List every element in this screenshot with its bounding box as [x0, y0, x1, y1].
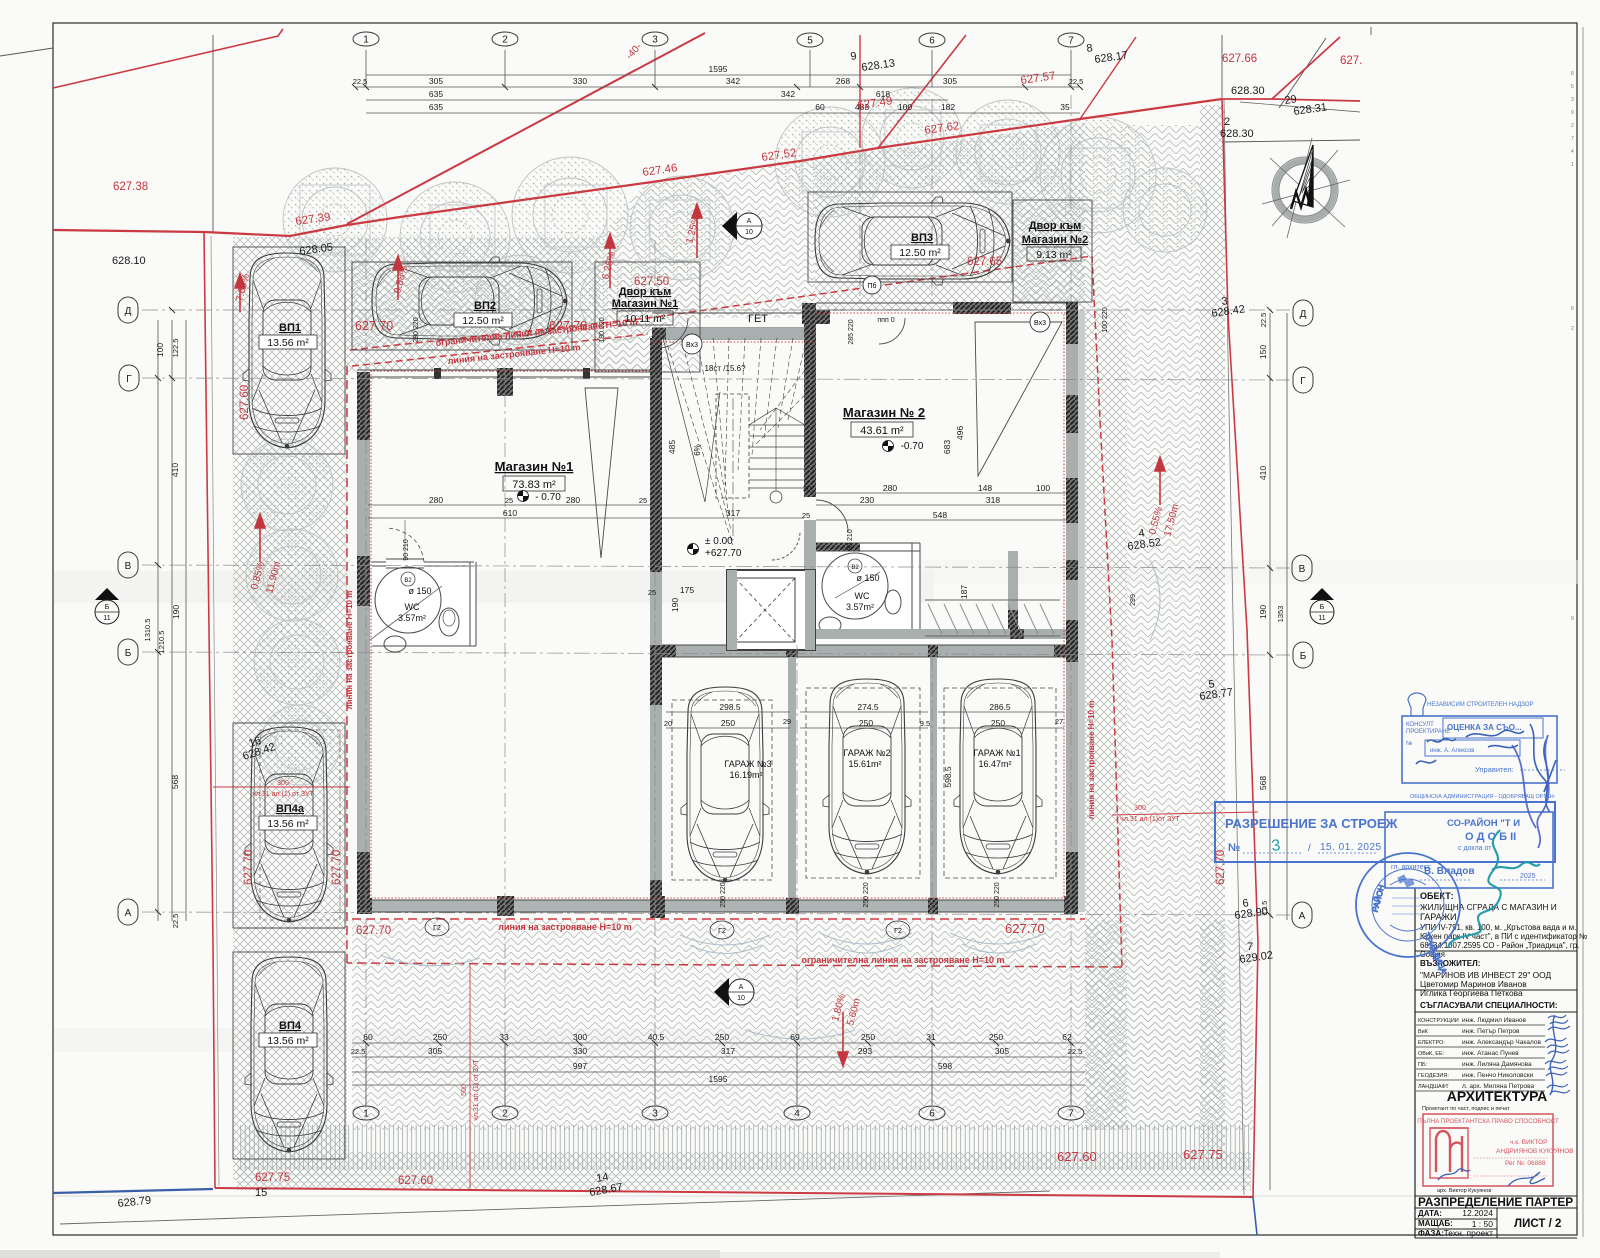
svg-text:ограничителна линия на застроя: ограничителна линия на застрояване H=10 …: [802, 955, 1005, 965]
svg-text:инж. Атанас Пунев: инж. Атанас Пунев: [1462, 1050, 1519, 1057]
svg-text:1: 1: [1571, 162, 1574, 168]
svg-text:9: 9: [1571, 110, 1574, 116]
svg-text:190: 190: [670, 598, 680, 612]
svg-text:В: В: [125, 561, 132, 572]
svg-text:8: 8: [1571, 71, 1574, 77]
svg-text:Магазин №2: Магазин №2: [1022, 234, 1089, 246]
svg-text:инж. Пенчо Николовски: инж. Пенчо Николовски: [1462, 1072, 1534, 1079]
svg-text:ЛАНДШАФТ: ЛАНДШАФТ: [1418, 1084, 1449, 1090]
svg-text:627.70: 627.70: [243, 850, 255, 885]
svg-text:22.5: 22.5: [353, 77, 368, 86]
svg-text:342: 342: [781, 89, 795, 99]
svg-text:В2: В2: [404, 578, 412, 584]
svg-text:чл.31 ал.(1) от ЗУТ: чл.31 ал.(1) от ЗУТ: [473, 1058, 480, 1120]
svg-text:2: 2: [1571, 326, 1574, 332]
svg-text:Проектант по част, подпис и пе: Проектант по част, подпис и печат: [1422, 1106, 1510, 1112]
svg-text:330: 330: [573, 76, 587, 86]
svg-text:11: 11: [1318, 615, 1325, 622]
svg-text:317: 317: [721, 1046, 735, 1056]
svg-text:2: 2: [502, 1109, 508, 1120]
svg-text:РАЗРЕШЕНИЕ ЗА СТРОЕЖ: РАЗРЕШЕНИЕ ЗА СТРОЕЖ: [1225, 816, 1398, 831]
svg-text:Б: Б: [1300, 651, 1307, 662]
svg-text:317: 317: [726, 508, 740, 518]
svg-text:15.61m²: 15.61m²: [848, 759, 881, 769]
svg-text:73.83 m²: 73.83 m²: [512, 479, 556, 491]
svg-text:5: 5: [1571, 84, 1574, 90]
svg-text:ОВиК, ЕЕ:: ОВиК, ЕЕ:: [1418, 1051, 1445, 1057]
svg-text:2: 2: [1571, 123, 1574, 129]
svg-text:чл.31 ал.(1) от ЗУТ: чл.31 ал.(1) от ЗУТ: [252, 791, 314, 798]
svg-text:Двор към: Двор към: [619, 286, 672, 298]
svg-text:627.60: 627.60: [398, 1175, 433, 1187]
svg-text:ВП1: ВП1: [279, 322, 301, 334]
svg-text:А: А: [747, 218, 752, 225]
svg-text:В2: В2: [851, 565, 859, 571]
svg-text:20: 20: [803, 484, 811, 493]
svg-text:с докла от: с докла от: [1458, 845, 1492, 852]
svg-text:25: 25: [802, 511, 810, 520]
svg-text:627.60: 627.60: [239, 385, 251, 420]
svg-text:610: 610: [503, 508, 517, 518]
svg-text:ГАРАЖ №2: ГАРАЖ №2: [843, 748, 890, 758]
svg-text:9.13 m²: 9.13 m²: [1036, 249, 1072, 261]
svg-text:WC: WC: [405, 602, 420, 612]
svg-text:ДАТА:: ДАТА:: [1418, 1209, 1442, 1218]
svg-text:12.50 m²: 12.50 m²: [462, 315, 504, 327]
svg-text:285 220: 285 220: [848, 319, 855, 344]
svg-text:305: 305: [943, 76, 957, 86]
svg-text:274.5: 274.5: [857, 702, 879, 712]
svg-text:148: 148: [978, 483, 992, 493]
svg-text:300: 300: [573, 1032, 587, 1042]
svg-text:31: 31: [926, 1032, 936, 1042]
svg-text:В. Владов: В. Владов: [1424, 866, 1475, 877]
svg-text:627.65: 627.65: [967, 256, 1002, 268]
svg-text:100: 100: [898, 102, 912, 112]
svg-text:АНДРИЯНОВ КУКУЯНОВ: АНДРИЯНОВ КУКУЯНОВ: [1496, 1148, 1574, 1155]
svg-text:1: 1: [363, 35, 369, 46]
svg-text:ОБЩИНСКА АДМИНИСТРАЦИЯ - ОДОБР: ОБЩИНСКА АДМИНИСТРАЦИЯ - ОДОБРЯВАЩ ОРГАН…: [1410, 794, 1556, 800]
svg-text:250 220: 250 220: [994, 882, 1001, 907]
svg-text:Магазин №1: Магазин №1: [495, 459, 574, 474]
svg-text:12.50 m²: 12.50 m²: [899, 247, 941, 259]
svg-text:ч.к. ВИКТОР: ч.к. ВИКТОР: [1510, 1139, 1548, 1146]
svg-text:268: 268: [836, 76, 850, 86]
svg-text:627.60: 627.60: [1057, 1149, 1097, 1164]
svg-text:548: 548: [933, 510, 947, 520]
svg-text:1595: 1595: [709, 64, 728, 74]
svg-text:7: 7: [1571, 136, 1574, 142]
svg-text:6%: 6%: [693, 444, 702, 456]
svg-text:3: 3: [652, 35, 658, 46]
svg-text:+627.70: +627.70: [705, 548, 742, 559]
svg-text:286.5: 286.5: [989, 702, 1011, 712]
svg-text:122.5: 122.5: [171, 339, 180, 358]
svg-text:1595: 1595: [709, 1074, 728, 1084]
svg-text:62: 62: [1062, 1032, 1072, 1042]
svg-text:22.5: 22.5: [1069, 77, 1084, 86]
svg-text:ø 150: ø 150: [856, 573, 879, 583]
svg-text:НЕЗАВИСИМ СТРОИТЕЛЕН НАДЗОР: НЕЗАВИСИМ СТРОИТЕЛЕН НАДЗОР: [1427, 702, 1534, 708]
svg-text:25: 25: [648, 588, 656, 597]
svg-text:280: 280: [883, 483, 897, 493]
svg-text:13.56 m²: 13.56 m²: [267, 1035, 309, 1047]
svg-text:100: 100: [1036, 483, 1050, 493]
svg-text:627.70: 627.70: [331, 850, 343, 885]
svg-text:ВП4а: ВП4а: [276, 803, 305, 815]
svg-text:43.61 m²: 43.61 m²: [860, 425, 904, 437]
svg-text:20: 20: [664, 719, 672, 728]
svg-text:чл.31 ал.(1)от ЗУТ: чл.31 ал.(1)от ЗУТ: [1120, 816, 1180, 823]
svg-text:2: 2: [502, 35, 508, 46]
svg-text:Г2: Г2: [894, 928, 902, 935]
svg-text:318: 318: [986, 495, 1000, 505]
svg-text:300: 300: [277, 780, 289, 787]
svg-text:305: 305: [428, 1046, 442, 1056]
svg-text:299: 299: [1130, 594, 1137, 606]
svg-text:/: /: [1308, 843, 1311, 854]
svg-text:628.10: 628.10: [112, 255, 146, 267]
svg-text:Магазин № 2: Магазин № 2: [843, 405, 925, 420]
svg-text:250: 250: [715, 1032, 729, 1042]
svg-text:12.2024: 12.2024: [1462, 1208, 1493, 1218]
svg-text:250: 250: [861, 1032, 875, 1042]
svg-text:627.75: 627.75: [1183, 1147, 1223, 1162]
svg-text:6: 6: [929, 1109, 935, 1120]
svg-text:90 210: 90 210: [847, 529, 854, 551]
svg-text:7: 7: [1068, 1109, 1074, 1120]
svg-text:ГАРАЖ №3: ГАРАЖ №3: [724, 759, 771, 769]
svg-text:22.5: 22.5: [171, 914, 180, 929]
svg-text:500: 500: [461, 1084, 468, 1096]
svg-text:496: 496: [955, 426, 965, 440]
svg-text:арх. Виктор Кукуянов: арх. Виктор Кукуянов: [1437, 1188, 1491, 1194]
svg-text:Южен парк IV част", в ПИ с иде: Южен парк IV част", в ПИ с идентификатор…: [1420, 932, 1587, 941]
svg-text:342: 342: [726, 76, 740, 86]
svg-text:635: 635: [429, 102, 443, 112]
svg-text:3: 3: [652, 1109, 658, 1120]
svg-text:ппп 0: ппп 0: [877, 317, 894, 324]
svg-text:3: 3: [1571, 97, 1574, 103]
svg-text:635: 635: [429, 89, 443, 99]
svg-text:ВиК: ВиК: [1418, 1029, 1429, 1035]
svg-text:№: №: [1406, 740, 1412, 747]
svg-text:280 220: 280 220: [413, 317, 420, 342]
svg-text:1310.5: 1310.5: [143, 619, 152, 642]
svg-text:ПЪЛНА ПРОЕКТАНТСКА ПРАВО СПОСО: ПЪЛНА ПРОЕКТАНТСКА ПРАВО СПОСОБНОСТ: [1417, 1118, 1559, 1125]
svg-text:16.19m²: 16.19m²: [729, 770, 762, 780]
svg-text:568: 568: [1258, 776, 1268, 790]
svg-text:627.38: 627.38: [113, 181, 148, 193]
svg-text:300: 300: [1134, 805, 1146, 812]
svg-text:Г2: Г2: [433, 925, 441, 932]
svg-text:627.70: 627.70: [1005, 921, 1045, 936]
svg-text:997: 997: [573, 1061, 587, 1071]
svg-text:Магазин №1: Магазин №1: [612, 298, 679, 310]
svg-text:10: 10: [737, 995, 745, 1002]
svg-text:683: 683: [942, 440, 952, 454]
svg-text:22.5: 22.5: [1259, 313, 1268, 328]
svg-text:Г: Г: [126, 374, 132, 385]
svg-text:ВП2: ВП2: [474, 300, 496, 312]
svg-text:305: 305: [429, 76, 443, 86]
svg-text:60: 60: [363, 1032, 373, 1042]
svg-text:293: 293: [858, 1046, 872, 1056]
svg-text:175: 175: [680, 585, 694, 595]
svg-text:33: 33: [499, 1032, 509, 1042]
svg-text:-0.70: -0.70: [901, 441, 924, 452]
svg-text:Г2: Г2: [718, 928, 726, 935]
svg-text:16.47m²: 16.47m²: [978, 759, 1011, 769]
svg-text:250: 250: [859, 718, 873, 728]
svg-text:Техн. проект: Техн. проект: [1444, 1228, 1494, 1238]
svg-text:10.11 m²: 10.11 m²: [625, 313, 666, 325]
svg-text:27: 27: [1055, 717, 1063, 726]
svg-text:100 220: 100 220: [1102, 307, 1109, 332]
svg-text:Г: Г: [1300, 376, 1306, 387]
svg-text:ПБ:: ПБ:: [1418, 1062, 1428, 1068]
svg-text:ВП4: ВП4: [279, 1020, 302, 1032]
svg-text:190: 190: [171, 605, 181, 619]
svg-text:Пб: Пб: [867, 282, 876, 290]
svg-text:280: 280: [429, 495, 443, 505]
svg-text:100: 100: [155, 343, 165, 357]
svg-text:13.56 m²: 13.56 m²: [267, 818, 309, 830]
svg-text:№: №: [1228, 842, 1240, 854]
svg-text:280: 280: [566, 495, 580, 505]
svg-text:627.70: 627.70: [1215, 850, 1227, 885]
svg-text:15: 15: [255, 1187, 267, 1199]
svg-text:4: 4: [1571, 149, 1574, 155]
svg-text:ВЪЗЛОЖИТЕЛ:: ВЪЗЛОЖИТЕЛ:: [1420, 959, 1480, 968]
svg-text:6: 6: [1571, 306, 1574, 312]
svg-text:230: 230: [860, 495, 874, 505]
svg-text:627.70: 627.70: [356, 925, 391, 937]
svg-text:ОБЕКТ:: ОБЕКТ:: [1420, 891, 1454, 901]
svg-text:1353: 1353: [1276, 606, 1285, 623]
svg-text:инж. А. Алексов: инж. А. Алексов: [1430, 748, 1474, 754]
svg-text:Иглика Георгиева Петкова: Иглика Георгиева Петкова: [1420, 988, 1523, 998]
svg-text:60: 60: [815, 102, 825, 112]
svg-text:5: 5: [807, 36, 813, 47]
svg-text:О Д О Б II: О Д О Б II: [1465, 831, 1516, 843]
svg-text:Д: Д: [125, 306, 132, 317]
svg-text:2025: 2025: [1520, 873, 1536, 880]
svg-text:6: 6: [929, 36, 935, 47]
svg-text:2: 2: [1224, 116, 1230, 128]
svg-text:90 210: 90 210: [403, 539, 410, 561]
svg-text:25: 25: [505, 496, 513, 505]
svg-text:линия на застрояване H=10 m: линия на застрояване H=10 m: [498, 922, 631, 932]
svg-text:250 220: 250 220: [863, 882, 870, 907]
svg-text:ГАРАЖ №1: ГАРАЖ №1: [973, 748, 1020, 758]
svg-text:СО-РАЙОН "Т И: СО-РАЙОН "Т И: [1447, 817, 1520, 829]
svg-text:40.5: 40.5: [648, 1032, 665, 1042]
svg-text:22.5: 22.5: [351, 1047, 366, 1056]
svg-text:Управител:: Управител:: [1475, 765, 1514, 774]
svg-text:Вх3: Вх3: [1034, 320, 1046, 327]
svg-text:13.56 m²: 13.56 m²: [267, 337, 309, 349]
svg-text:инж. Петър Петров: инж. Петър Петров: [1462, 1028, 1520, 1035]
svg-text:9.5: 9.5: [920, 719, 930, 728]
svg-text:7: 7: [1068, 36, 1074, 47]
svg-text:598.5: 598.5: [943, 766, 953, 788]
svg-text:627.: 627.: [1340, 55, 1362, 67]
svg-text:ВП3: ВП3: [911, 232, 933, 244]
svg-text:25: 25: [639, 496, 647, 505]
svg-text:22.5: 22.5: [1068, 1047, 1083, 1056]
svg-text:ФАЗА:: ФАЗА:: [1418, 1229, 1444, 1238]
svg-text:ø 150: ø 150: [408, 586, 431, 596]
svg-text:4: 4: [794, 1109, 800, 1120]
svg-text:627.75: 627.75: [255, 1172, 290, 1184]
svg-text:Рег №: 06888: Рег №: 06888: [1505, 1160, 1546, 1167]
svg-text:298.5: 298.5: [719, 702, 741, 712]
svg-text:628.30: 628.30: [1220, 128, 1254, 140]
svg-text:1210.5: 1210.5: [157, 631, 166, 654]
svg-text:9: 9: [1571, 616, 1574, 622]
svg-text:А: А: [125, 908, 132, 919]
svg-text:- 0.70: - 0.70: [535, 492, 561, 503]
svg-text:ГАРАЖИ,: ГАРАЖИ,: [1420, 912, 1459, 922]
svg-text:485: 485: [667, 440, 677, 454]
svg-text:15. 01. 2025: 15. 01. 2025: [1320, 842, 1382, 853]
svg-text:инж. Александър Чакалов: инж. Александър Чакалов: [1462, 1039, 1541, 1046]
svg-text:628.30: 628.30: [1231, 85, 1265, 97]
svg-text:568: 568: [170, 775, 180, 789]
svg-text:ПРОЕКТИРАНЕ: ПРОЕКТИРАНЕ: [1406, 729, 1450, 735]
svg-text:КОНСУЛТ: КОНСУЛТ: [1406, 722, 1434, 728]
svg-text:Вх3: Вх3: [686, 342, 698, 349]
svg-text:СЪГЛАСУВАЛИ СПЕЦИАЛНОСТИ:: СЪГЛАСУВАЛИ СПЕЦИАЛНОСТИ:: [1420, 1001, 1558, 1010]
svg-text:МАЩАБ:: МАЩАБ:: [1418, 1219, 1453, 1228]
svg-text:250: 250: [991, 718, 1005, 728]
svg-text:182: 182: [941, 102, 955, 112]
svg-text:35: 35: [1060, 102, 1070, 112]
svg-text:3.57m²: 3.57m²: [846, 602, 874, 612]
svg-text:1: 1: [363, 1109, 369, 1120]
svg-text:инж. Лиляна Дамянова: инж. Лиляна Дамянова: [1462, 1061, 1532, 1068]
svg-text:627.66: 627.66: [1222, 53, 1257, 65]
svg-text:Д: Д: [1300, 309, 1307, 320]
svg-text:305: 305: [995, 1046, 1009, 1056]
svg-text:3: 3: [1271, 837, 1282, 855]
svg-text:410: 410: [170, 463, 180, 477]
svg-text:190: 190: [1258, 605, 1268, 619]
svg-text:10: 10: [745, 229, 753, 236]
svg-text:250 220: 250 220: [720, 882, 727, 907]
svg-text:линия на застрояване H=10 m: линия на застрояване H=10 m: [345, 591, 354, 710]
svg-text:КОНСТРУКЦИИ: КОНСТРУКЦИИ: [1418, 1018, 1459, 1024]
svg-text:± 0.00: ± 0.00: [705, 536, 733, 547]
svg-text:ГЕТ: ГЕТ: [748, 313, 768, 325]
svg-text:Б: Б: [105, 604, 110, 611]
svg-text:АРХИТЕКТУРА: АРХИТЕКТУРА: [1447, 1088, 1548, 1104]
svg-text:410: 410: [1258, 466, 1268, 480]
svg-text:250: 250: [989, 1032, 1003, 1042]
svg-text:627.70: 627.70: [355, 319, 393, 333]
svg-text:Б: Б: [125, 648, 132, 659]
svg-text:250: 250: [721, 718, 735, 728]
svg-text:В: В: [1299, 564, 1306, 575]
svg-text:11: 11: [103, 615, 110, 622]
svg-text:ЛИСТ / 2: ЛИСТ / 2: [1514, 1218, 1561, 1230]
svg-text:инж. Людмил Иванов: инж. Людмил Иванов: [1462, 1017, 1527, 1024]
svg-text:187: 187: [959, 585, 969, 599]
svg-text:598: 598: [938, 1061, 952, 1071]
svg-text:А: А: [1299, 911, 1306, 922]
svg-text:250: 250: [433, 1032, 447, 1042]
svg-text:ГЕОДЕЗИЯ:: ГЕОДЕЗИЯ:: [1418, 1073, 1449, 1079]
svg-text:69: 69: [790, 1032, 800, 1042]
svg-text:WC: WC: [855, 591, 870, 601]
svg-text:7: 7: [1247, 941, 1253, 953]
svg-text:линия на застрояване H=10 m: линия на застрояване H=10 m: [1087, 701, 1096, 820]
svg-text:150: 150: [1258, 345, 1268, 359]
svg-text:Двор към: Двор към: [1029, 220, 1082, 232]
svg-text:3.57m²: 3.57m²: [398, 613, 426, 623]
svg-text:РАЗПРЕДЕЛЕНИЕ ПАРТЕР: РАЗПРЕДЕЛЕНИЕ ПАРТЕР: [1418, 1195, 1573, 1209]
svg-text:А: А: [739, 984, 744, 991]
svg-text:ЕЛЕКТРО:: ЕЛЕКТРО:: [1418, 1040, 1445, 1046]
svg-text:29: 29: [783, 717, 791, 726]
svg-text:18ст /15.6?: 18ст /15.6?: [704, 364, 746, 373]
svg-text:330: 330: [573, 1046, 587, 1056]
svg-text:УПИ IV-791, кв. 100, м. „Кръст: УПИ IV-791, кв. 100, м. „Кръстова вада и…: [1420, 923, 1576, 932]
svg-text:Б: Б: [1320, 604, 1325, 611]
